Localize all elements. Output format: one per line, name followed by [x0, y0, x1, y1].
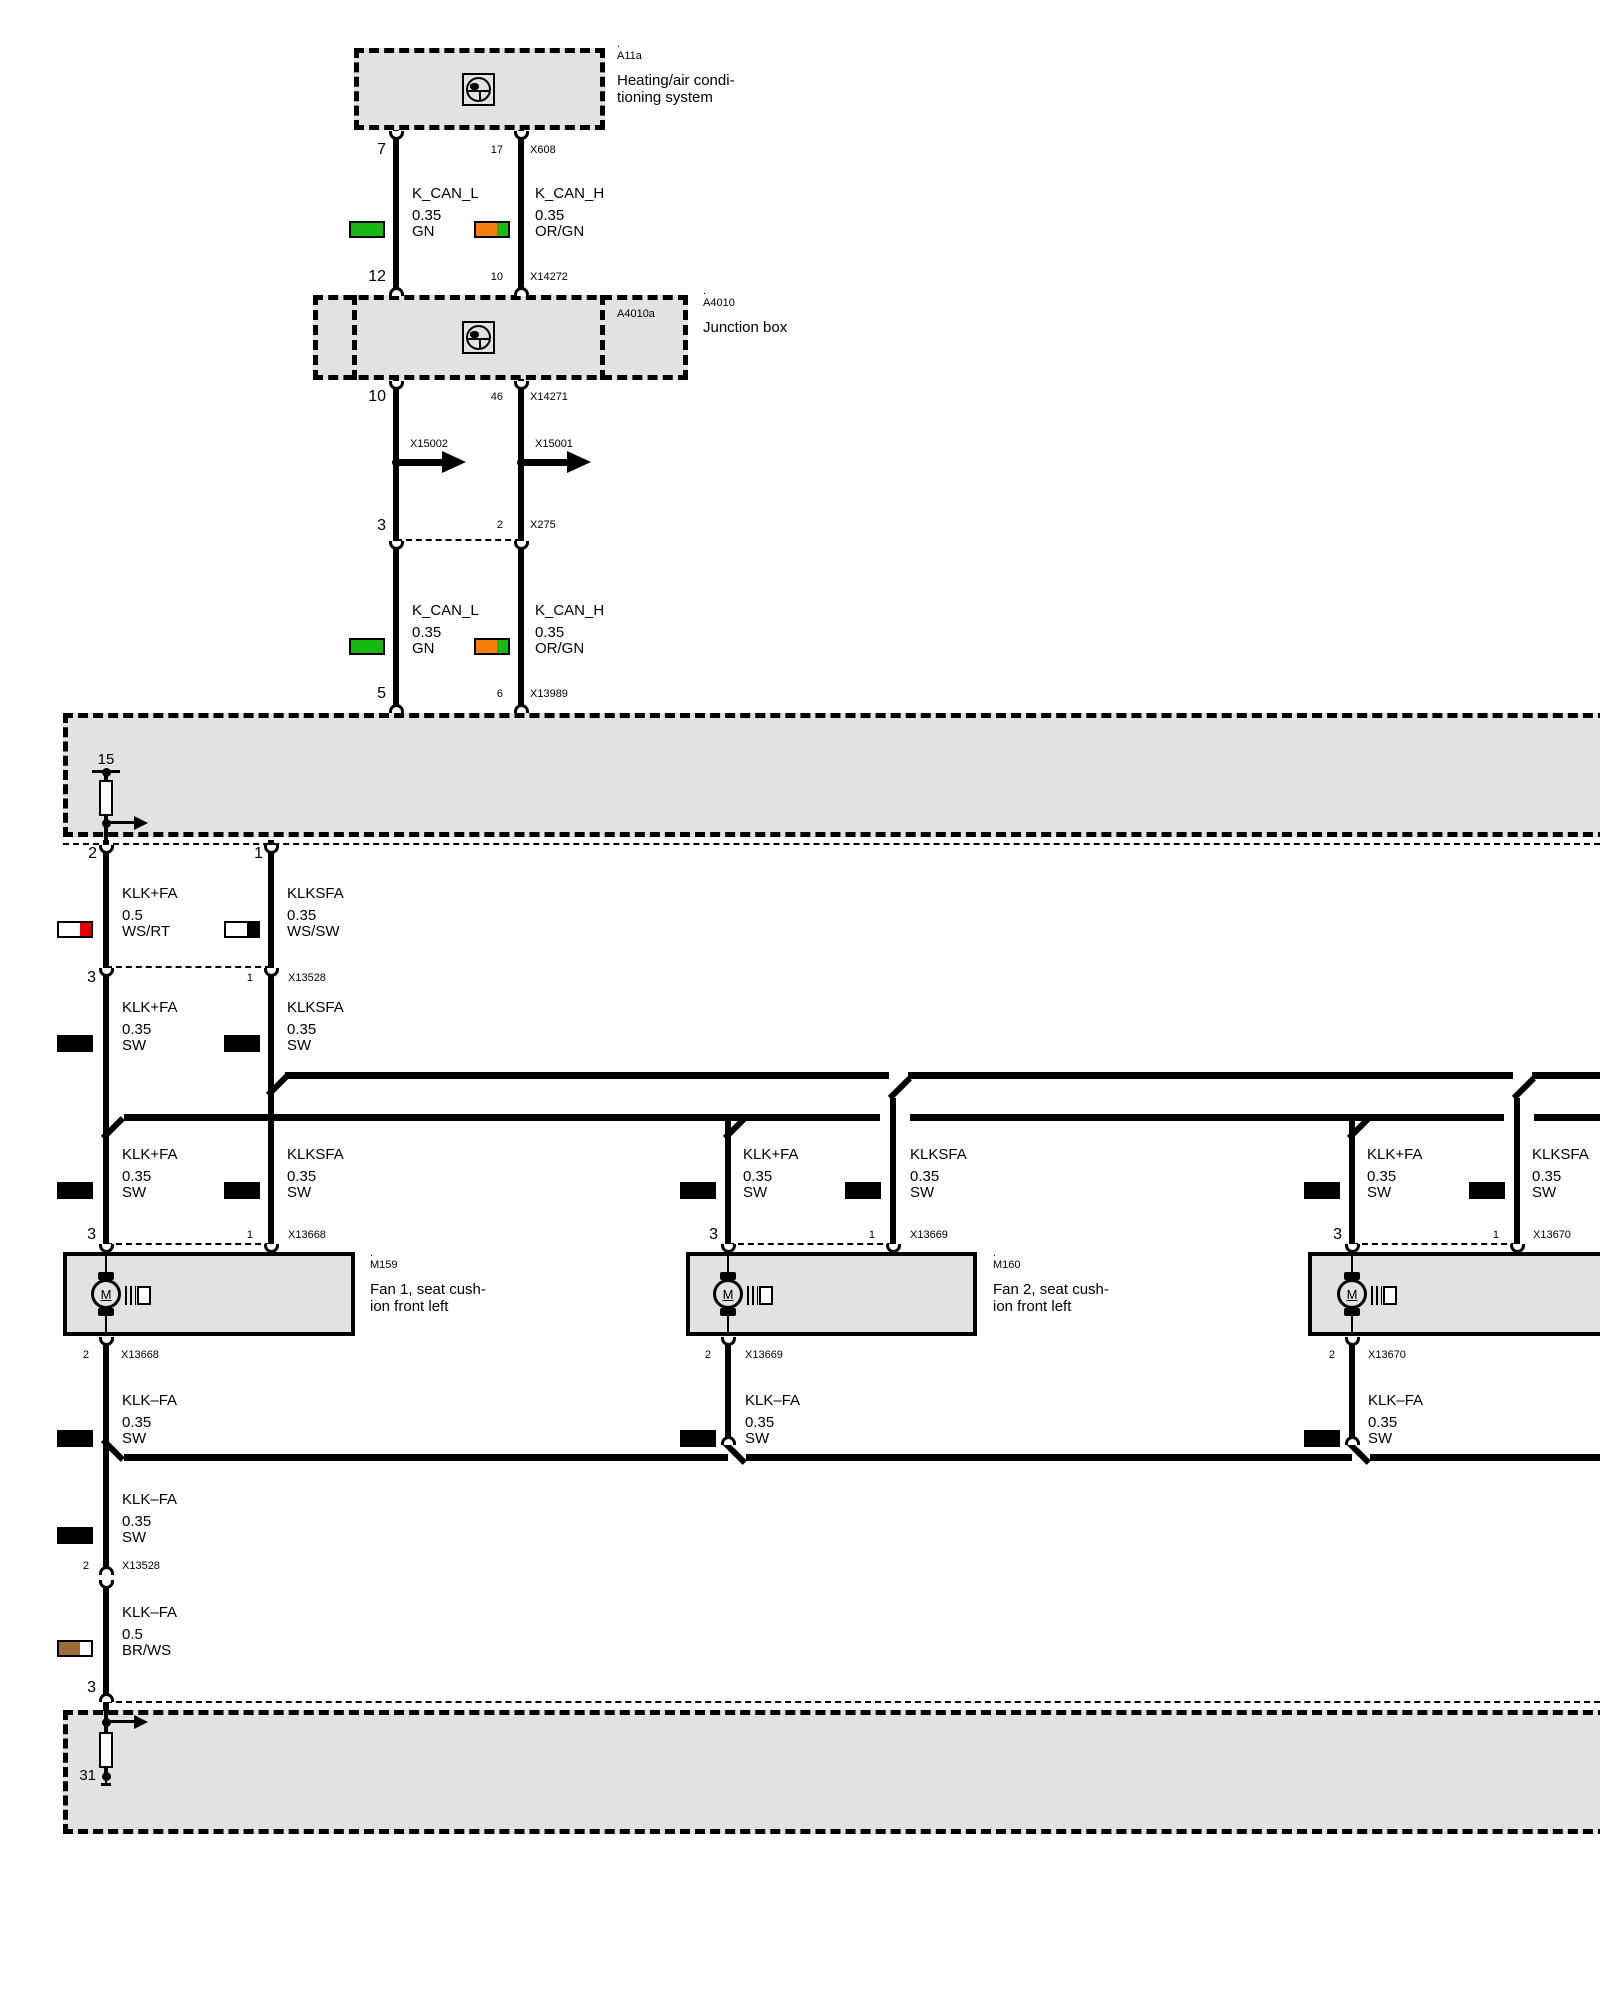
connector-id: X14271	[530, 391, 568, 404]
plug-arrow	[521, 459, 567, 466]
junction-box-divider	[352, 295, 357, 380]
wire-color: SW	[1368, 1430, 1392, 1447]
wire-color: SW	[743, 1184, 767, 1201]
ground-distribution-box	[63, 1710, 1600, 1834]
branch-klksfa-fan2	[888, 1076, 912, 1100]
connector-rail-fan2	[728, 1243, 893, 1245]
pin-number: 3	[56, 969, 96, 987]
wire-color: SW	[745, 1430, 769, 1447]
connector-fork-icon	[99, 1337, 114, 1346]
wire-klkminus-fan2	[725, 1341, 731, 1444]
connector-id: X608	[530, 144, 556, 157]
connector-id: X13528	[122, 1560, 160, 1573]
pin-number: 1	[205, 1229, 253, 1242]
splice-arrow-head-icon	[134, 816, 148, 830]
pin-number: 3	[56, 1679, 96, 1697]
pin-number: 1	[205, 972, 253, 985]
wire-name: KLKSFA	[910, 1146, 967, 1163]
splice-arrow-head-icon	[134, 1715, 148, 1729]
component-desc: Fan 2, seat cush-	[993, 1281, 1109, 1298]
motor-brush-icon	[720, 1308, 736, 1316]
wire-color: SW	[122, 1037, 146, 1054]
chip-ws-rt	[57, 921, 93, 938]
connector-rail-x275	[396, 539, 521, 541]
wire-color: SW	[122, 1529, 146, 1546]
connector-fork-icon	[721, 1337, 736, 1346]
terminal-15-label: 15	[86, 751, 126, 768]
wire-gauge: 0.35	[1368, 1414, 1397, 1431]
wiring-diagram-canvas: M M M . A11a Heating/air condi- tioning …	[0, 0, 1600, 2000]
wire-color: WS/SW	[287, 923, 340, 940]
wire-color: SW	[910, 1184, 934, 1201]
wire-color: SW	[122, 1430, 146, 1447]
chip-sw	[680, 1182, 716, 1199]
wire-color: SW	[1532, 1184, 1556, 1201]
wire-name: KLK+FA	[122, 999, 177, 1016]
wire-name: K_CAN_H	[535, 602, 604, 619]
splice-arrow	[106, 821, 134, 824]
chip-or-gn	[474, 221, 510, 238]
connector-fork-icon	[1345, 1337, 1360, 1346]
motor-connector-icon	[125, 1286, 136, 1305]
wire-name: K_CAN_L	[412, 185, 479, 202]
wire-color: SW	[122, 1184, 146, 1201]
junction-box-divider	[600, 295, 605, 380]
wire-name: KLK–FA	[122, 1392, 177, 1409]
wire-gauge: 0.5	[122, 1626, 143, 1643]
wire-klksfa-fan1	[268, 840, 274, 1253]
wire-color: SW	[1367, 1184, 1391, 1201]
chip-sw	[1304, 1430, 1340, 1447]
pin-number: 2	[681, 1349, 711, 1362]
wire-gauge: 0.35	[1367, 1168, 1396, 1185]
pin-number: 1	[223, 845, 263, 863]
wire-gauge: 0.35	[122, 1414, 151, 1431]
connector-fork-icon	[389, 287, 404, 296]
connector-fork-icon	[389, 541, 404, 550]
chip-or-gn	[474, 638, 510, 655]
fuse-icon	[99, 780, 113, 816]
motor-brush-icon	[1344, 1308, 1360, 1316]
connector-rail-fan1	[106, 1243, 271, 1245]
wire-kcanl-upper	[393, 130, 399, 296]
connector-rail-fan3	[1352, 1243, 1517, 1245]
wire-color: OR/GN	[535, 223, 584, 240]
wire-color: SW	[287, 1184, 311, 1201]
branch-klksfa-fan3	[1512, 1076, 1536, 1100]
wire-gauge: 0.35	[910, 1168, 939, 1185]
connector-id: X13668	[288, 1229, 326, 1242]
power-distribution-box	[63, 713, 1600, 837]
connector-id: X14272	[530, 271, 568, 284]
pin-number: 17	[455, 144, 503, 157]
chip-sw	[57, 1035, 93, 1052]
wire-gauge: 0.35	[535, 624, 564, 641]
wire-klkplus-fan1	[103, 840, 109, 1253]
connector-fork-icon	[1345, 1436, 1360, 1445]
motor-connector-icon	[747, 1286, 758, 1305]
pin-number: 5	[346, 685, 386, 703]
connector-fork-icon	[514, 131, 529, 140]
connector-fork-icon	[389, 131, 404, 140]
connector-fork-icon	[514, 381, 529, 390]
wire-gauge: 0.35	[287, 1168, 316, 1185]
fan2-inner-wire	[727, 1316, 729, 1336]
wire-gauge: 0.5	[122, 907, 143, 924]
connector-id: X13989	[530, 688, 568, 701]
bus-klkminus-seg1	[124, 1454, 728, 1461]
pin-number: 1	[1451, 1229, 1499, 1242]
wire-klkminus-fan3	[1349, 1341, 1355, 1444]
bus-klksfa-seg2	[908, 1072, 1513, 1079]
pin-number: 10	[455, 271, 503, 284]
wire-klkminus-fan1-lower	[103, 1581, 109, 1711]
component-id-a4010a: A4010a	[617, 308, 655, 321]
chip-ws-sw	[224, 921, 260, 938]
wire-gauge: 0.35	[745, 1414, 774, 1431]
connector-fork-icon	[514, 704, 529, 713]
chip-sw	[57, 1527, 93, 1544]
wire-name: KLK–FA	[745, 1392, 800, 1409]
wire-gauge: 0.35	[122, 1168, 151, 1185]
component-id-m159: M159	[370, 1259, 398, 1272]
component-desc: tioning system	[617, 89, 713, 106]
chip-sw	[57, 1430, 93, 1447]
connector-fork-icon	[389, 704, 404, 713]
wire-color: SW	[287, 1037, 311, 1054]
connector-fork-icon	[514, 541, 529, 550]
wire-klksfa-fan2	[890, 1098, 896, 1253]
chip-br-ws	[57, 1640, 93, 1657]
pin-number: 7	[346, 141, 386, 159]
pin-number: 3	[346, 517, 386, 535]
bus-klkminus-seg2	[746, 1454, 1352, 1461]
wire-gauge: 0.35	[287, 907, 316, 924]
wire-gauge: 0.35	[287, 1021, 316, 1038]
bus-klksfa-seg1	[285, 1072, 889, 1079]
component-desc: ion front left	[993, 1298, 1071, 1315]
wire-gauge: 0.35	[412, 624, 441, 641]
connector-rail-box1	[63, 843, 1600, 845]
splice-arrow	[106, 1720, 134, 1723]
pin-number: 10	[346, 388, 386, 406]
wire-name: KLK–FA	[122, 1604, 177, 1621]
component-id-a11a: A11a	[617, 50, 642, 63]
component-id-m160: M160	[993, 1259, 1021, 1272]
motor-connector-icon	[1371, 1286, 1382, 1305]
fan3-inner-wire	[1351, 1252, 1353, 1272]
bus-klkminus-seg3	[1370, 1454, 1600, 1461]
connector-id: X13528	[288, 972, 326, 985]
control-unit-icon	[462, 73, 495, 106]
wire-gauge: 0.35	[122, 1513, 151, 1530]
chip-sw	[1304, 1182, 1340, 1199]
wire-gauge: 0.35	[412, 207, 441, 224]
wire-color: WS/RT	[122, 923, 170, 940]
connector-id: X13670	[1368, 1349, 1406, 1362]
connector-id: X15001	[535, 438, 573, 451]
wire-name: KLKSFA	[287, 1146, 344, 1163]
pin-number: 3	[56, 1226, 96, 1244]
component-desc: Fan 1, seat cush-	[370, 1281, 486, 1298]
connector-fork-icon	[99, 1566, 114, 1575]
connector-rail-x13528	[106, 966, 271, 968]
wire-name: KLK+FA	[122, 1146, 177, 1163]
wire-kcanh-upper	[518, 130, 524, 296]
pin-number: 2	[1305, 1349, 1335, 1362]
chip-sw	[680, 1430, 716, 1447]
wire-gauge: 0.35	[743, 1168, 772, 1185]
plug-arrow-head-icon	[567, 451, 591, 473]
wire-klksfa-fan3	[1514, 1098, 1520, 1253]
pin-number: 2	[59, 1349, 89, 1362]
motor-connector-icon	[137, 1286, 151, 1305]
pin-number: 12	[346, 268, 386, 286]
chip-sw	[224, 1182, 260, 1199]
pin-number: 3	[1302, 1226, 1342, 1244]
motor-icon: M	[713, 1279, 743, 1309]
chip-sw	[845, 1182, 881, 1199]
bus-klkplus-seg1	[124, 1114, 880, 1121]
wire-color: OR/GN	[535, 640, 584, 657]
connector-id: X15002	[410, 438, 448, 451]
pin-number: 3	[678, 1226, 718, 1244]
pin-number: 2	[59, 1560, 89, 1573]
motor-icon: M	[91, 1279, 121, 1309]
terminal15-node	[102, 768, 111, 777]
wire-gauge: 0.35	[535, 207, 564, 224]
connector-fork-icon	[99, 1580, 114, 1589]
connector-id: X13670	[1533, 1229, 1571, 1242]
chip-sw	[1469, 1182, 1505, 1199]
wire-color: BR/WS	[122, 1642, 171, 1659]
wire-color: GN	[412, 640, 435, 657]
wire-name: K_CAN_L	[412, 602, 479, 619]
component-desc: ion front left	[370, 1298, 448, 1315]
connector-fork-icon	[99, 968, 114, 977]
connector-id: X275	[530, 519, 556, 532]
control-unit-icon	[462, 321, 495, 354]
component-desc: Heating/air condi-	[617, 72, 735, 89]
motor-connector-icon	[759, 1286, 773, 1305]
fuse-icon	[99, 1732, 113, 1768]
wire-color: GN	[412, 223, 435, 240]
terminal-31-label: 31	[56, 1767, 96, 1784]
bus-klksfa-seg3	[1532, 1072, 1600, 1079]
connector-rail-box2	[106, 1701, 1600, 1703]
pin-number: 46	[455, 391, 503, 404]
pin-number: 6	[455, 688, 503, 701]
chip-gn	[349, 221, 385, 238]
chip-sw	[57, 1182, 93, 1199]
wire-name: KLKSFA	[287, 885, 344, 902]
pin-number: 2	[57, 845, 97, 863]
wire-name: KLK+FA	[1367, 1146, 1422, 1163]
fan1-inner-wire	[105, 1252, 107, 1272]
connector-fork-icon	[721, 1436, 736, 1445]
component-desc: Junction box	[703, 319, 787, 336]
wire-name: KLK+FA	[122, 885, 177, 902]
fan3-inner-wire	[1351, 1316, 1353, 1336]
wire-gauge: 0.35	[1532, 1168, 1561, 1185]
connector-id: X13669	[745, 1349, 783, 1362]
motor-brush-icon	[98, 1308, 114, 1316]
connector-fork-icon	[389, 381, 404, 390]
pin-number: 2	[455, 519, 503, 532]
ground-icon	[101, 1783, 111, 1786]
component-id-a4010: A4010	[703, 297, 735, 310]
plug-arrow	[396, 459, 442, 466]
wire-name: KLK–FA	[1368, 1392, 1423, 1409]
bus-klkplus-seg3	[1534, 1114, 1600, 1121]
wire-name: K_CAN_H	[535, 185, 604, 202]
connector-id: X13669	[910, 1229, 948, 1242]
motor-icon: M	[1337, 1279, 1367, 1309]
wire-gauge: 0.35	[122, 1021, 151, 1038]
fan2-inner-wire	[727, 1252, 729, 1272]
fan1-inner-wire	[105, 1316, 107, 1336]
motor-connector-icon	[1383, 1286, 1397, 1305]
bus-klkplus-seg2	[910, 1114, 1504, 1121]
chip-sw	[224, 1035, 260, 1052]
wire-name: KLKSFA	[287, 999, 344, 1016]
connector-fork-icon	[99, 1693, 114, 1702]
wire-name: KLK+FA	[743, 1146, 798, 1163]
connector-fork-icon	[264, 845, 279, 854]
pin-number: 1	[827, 1229, 875, 1242]
connector-fork-icon	[99, 845, 114, 854]
plug-arrow-head-icon	[442, 451, 466, 473]
connector-id: X13668	[121, 1349, 159, 1362]
connector-fork-icon	[264, 968, 279, 977]
wire-klkminus-fan1-upper	[103, 1341, 109, 1575]
connector-fork-icon	[514, 287, 529, 296]
wire-name: KLK–FA	[122, 1491, 177, 1508]
wire-name: KLKSFA	[1532, 1146, 1589, 1163]
chip-gn	[349, 638, 385, 655]
